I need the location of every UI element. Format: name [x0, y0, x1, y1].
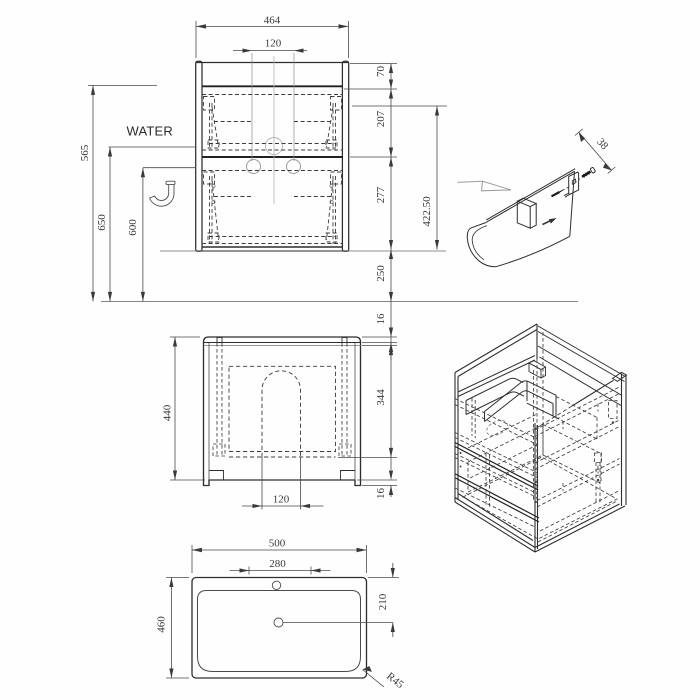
- svg-text:207: 207: [375, 110, 387, 127]
- svg-text:120: 120: [265, 38, 282, 50]
- svg-text:38: 38: [594, 136, 611, 153]
- svg-text:250: 250: [375, 265, 387, 282]
- svg-text:210: 210: [377, 593, 389, 610]
- svg-text:650: 650: [96, 214, 108, 231]
- svg-text:277: 277: [375, 186, 387, 203]
- svg-text:440: 440: [162, 404, 174, 421]
- svg-text:120: 120: [273, 494, 290, 506]
- svg-text:R45: R45: [384, 670, 406, 691]
- svg-text:500: 500: [269, 538, 286, 550]
- svg-text:600: 600: [127, 219, 139, 236]
- svg-text:464: 464: [264, 15, 281, 27]
- svg-text:16: 16: [375, 488, 387, 500]
- svg-text:565: 565: [79, 144, 91, 161]
- svg-text:344: 344: [375, 389, 387, 406]
- svg-text:422.50: 422.50: [421, 196, 433, 227]
- svg-text:460: 460: [156, 616, 168, 633]
- svg-text:16: 16: [375, 313, 387, 325]
- svg-text:WATER: WATER: [127, 124, 174, 139]
- svg-text:280: 280: [269, 558, 286, 570]
- svg-text:70: 70: [375, 66, 387, 78]
